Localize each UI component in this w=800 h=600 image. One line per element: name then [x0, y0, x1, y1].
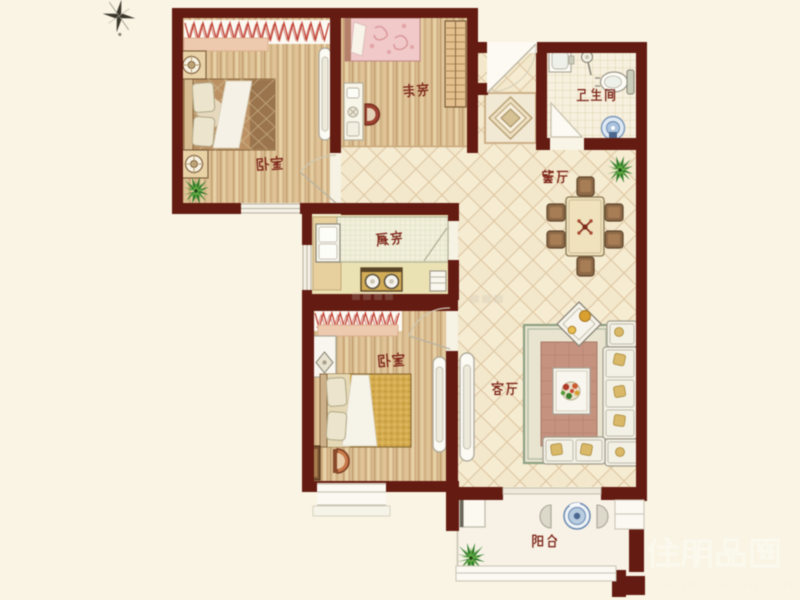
svg-text:www.zhupin.com: www.zhupin.com	[661, 576, 798, 593]
